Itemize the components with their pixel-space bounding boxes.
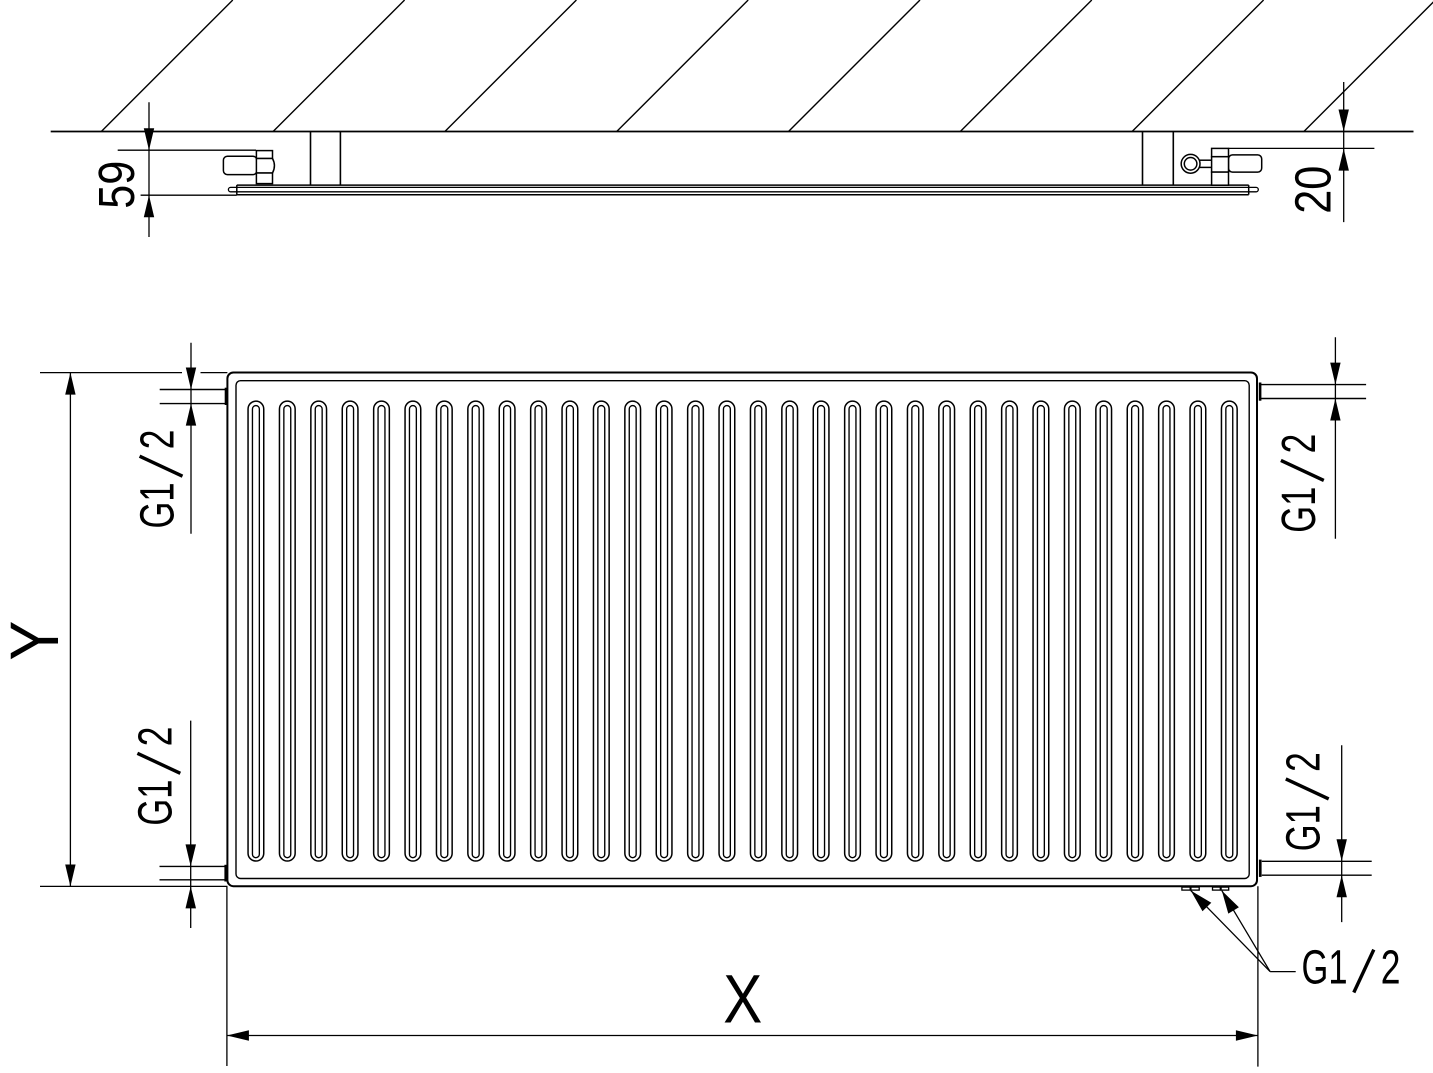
- svg-text:Y: Y: [0, 621, 73, 661]
- svg-text:2: 2: [1273, 434, 1326, 454]
- svg-text:G1: G1: [132, 483, 185, 529]
- svg-text:G1: G1: [1278, 805, 1331, 851]
- svg-text:2: 2: [129, 727, 182, 747]
- svg-text:G1: G1: [129, 780, 182, 826]
- svg-text:G1: G1: [1302, 942, 1348, 995]
- svg-text:2: 2: [1278, 752, 1331, 772]
- svg-text:2: 2: [132, 430, 185, 450]
- svg-text:G1: G1: [1273, 487, 1326, 533]
- svg-text:X: X: [723, 960, 762, 1037]
- svg-text:20: 20: [1284, 166, 1341, 214]
- svg-text:2: 2: [1381, 942, 1401, 995]
- svg-text:59: 59: [88, 161, 145, 209]
